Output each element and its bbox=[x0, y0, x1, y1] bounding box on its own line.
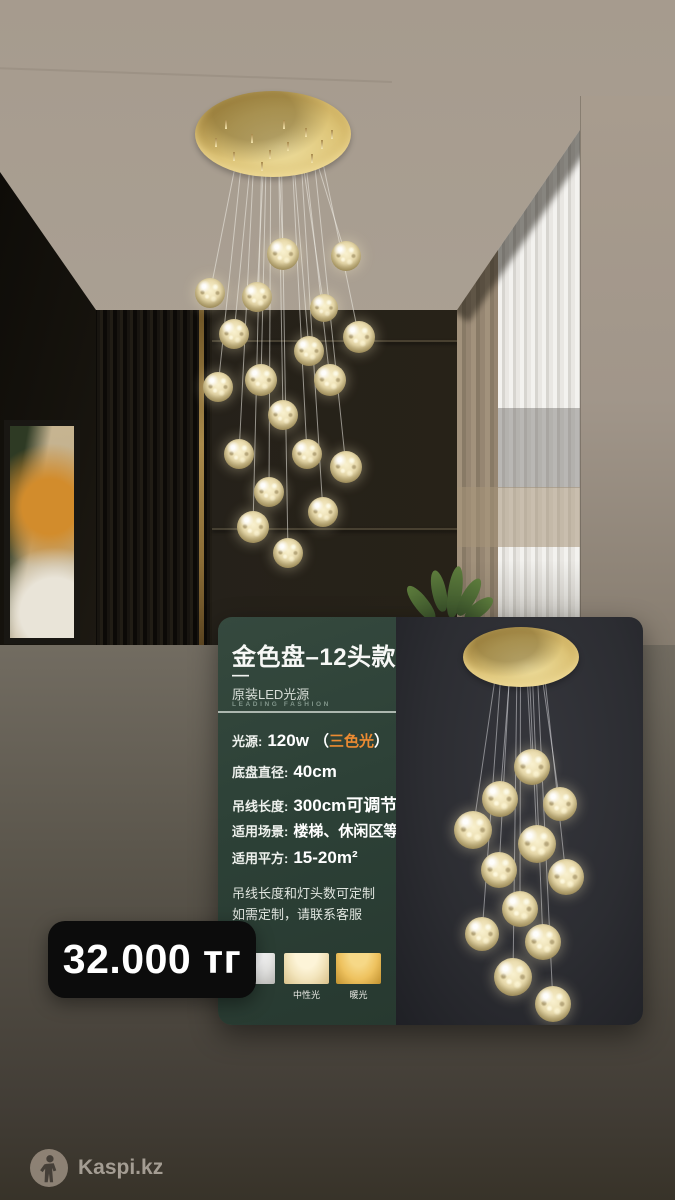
spec-label: 底盘直径: bbox=[232, 762, 288, 781]
swatch-label-warm: 暖光 bbox=[336, 988, 381, 1001]
spec-label: 吊线长度: bbox=[232, 796, 288, 815]
product-title: 金色盘–12头款 bbox=[232, 637, 396, 672]
spec-row-power: 光源: 120w （ 三色光 ） bbox=[232, 730, 389, 751]
spec-highlight: 三色光 bbox=[329, 730, 374, 751]
spec-row-diameter: 底盘直径: 40cm bbox=[232, 762, 337, 782]
spec-label: 适用平方: bbox=[232, 848, 288, 867]
custom-note-line1: 吊线长度和灯头数可定制 bbox=[232, 883, 375, 902]
spec-label: 光源: bbox=[232, 731, 262, 750]
brand-footer: Kaspi.kz bbox=[30, 1149, 163, 1187]
spec-value: 15-20m² bbox=[293, 848, 357, 868]
light-swatch-neutral bbox=[284, 953, 329, 984]
chandelier-wires bbox=[0, 0, 675, 645]
spec-label: 适用场景: bbox=[232, 821, 288, 840]
room-photo bbox=[0, 0, 675, 645]
price-tag: 32.000 тг bbox=[48, 921, 256, 998]
spec-row-area: 适用平方: 15-20m² bbox=[232, 848, 358, 868]
spec-value: 楼梯、休闲区等 bbox=[293, 820, 398, 841]
product-spec-card: 金色盘–12头款 — 原装LED光源 LEADING FASHION 光源: 1… bbox=[218, 617, 643, 1025]
title-dash: — bbox=[232, 665, 249, 685]
chandelier-ceiling-plate bbox=[195, 91, 351, 177]
spec-bracket: （ bbox=[314, 730, 329, 751]
custom-note-line2: 如需定制，请联系客服 bbox=[232, 904, 362, 923]
spec-value: 300cm可调节 bbox=[293, 791, 397, 816]
spec-bracket: ） bbox=[374, 730, 389, 751]
light-swatch-warm bbox=[336, 953, 381, 984]
product-listing-image[interactable]: 金色盘–12头款 — 原装LED光源 LEADING FASHION 光源: 1… bbox=[0, 0, 675, 1200]
product-photo-panel bbox=[396, 617, 643, 1025]
spec-row-scene: 适用场景: 楼梯、休闲区等 bbox=[232, 820, 398, 841]
panel-divider bbox=[218, 711, 396, 713]
product-ceiling-plate bbox=[463, 627, 579, 687]
product-tagline: LEADING FASHION bbox=[232, 701, 331, 708]
brand-name: Kaspi.kz bbox=[78, 1156, 163, 1180]
spec-value: 120w bbox=[267, 731, 309, 751]
swatch-label-neutral: 中性光 bbox=[284, 988, 329, 1001]
spec-row-cord-length: 吊线长度: 300cm可调节 bbox=[232, 791, 397, 816]
spec-value: 40cm bbox=[293, 762, 336, 782]
kaspi-logo-icon bbox=[30, 1149, 68, 1187]
